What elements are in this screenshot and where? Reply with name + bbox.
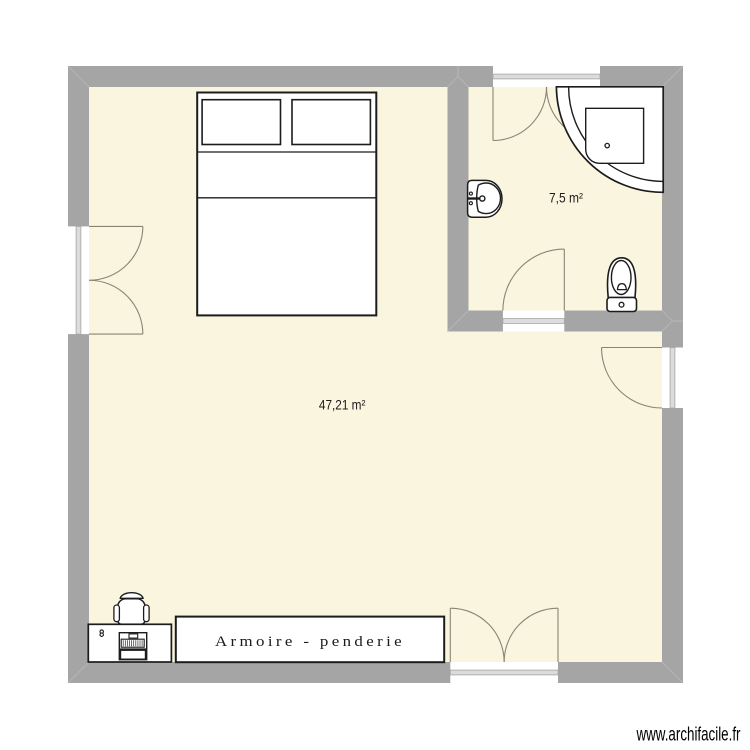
svg-text:www.archifacile.fr: www.archifacile.fr (636, 725, 741, 746)
svg-text:47,21 m²: 47,21 m² (319, 397, 366, 413)
svg-text:7,5 m²: 7,5 m² (549, 190, 583, 206)
svg-text:Armoire - penderie: Armoire - penderie (215, 634, 405, 650)
